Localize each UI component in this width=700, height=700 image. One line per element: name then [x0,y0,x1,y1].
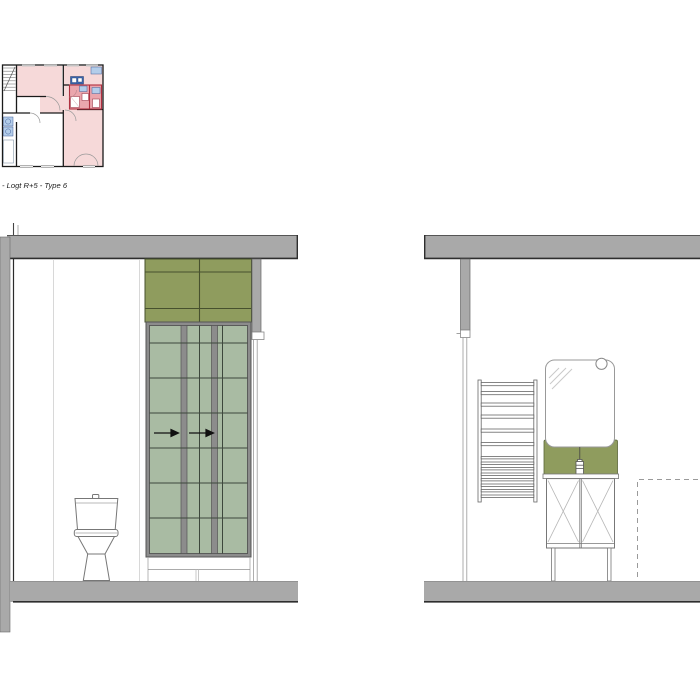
upper-cabinet-panel [145,259,252,322]
glazed-sliding-partition [146,322,251,557]
elevation-left [0,223,298,632]
partition-plinth [148,557,250,581]
mirror-light [596,358,607,369]
wall-post-right-elevation [457,259,471,581]
floor-slab-right [424,581,700,602]
toilet-flush-button [93,495,99,499]
vanity-cabinet [547,479,615,548]
toilet [74,495,118,581]
architectural-sheet: - Logt R+5 - Type 6 [0,0,700,700]
plan-staircase [3,67,15,91]
floor-plan-thumbnail: - Logt R+5 - Type 6 [2,64,103,190]
ceiling-slab-right [424,235,700,259]
elevation-right [424,235,700,602]
door-stile [212,326,218,554]
plan-room-fills [17,66,103,166]
ceiling-slab-left [7,223,298,259]
drawing-canvas: - Logt R+5 - Type 6 [0,0,700,700]
mirror [546,358,615,447]
vanity-countertop [543,474,619,479]
cabinet-legs [552,548,612,581]
plan-caption: - Logt R+5 - Type 6 [2,181,68,190]
floor-slab-left [10,581,298,602]
reservation-dashed-outline [638,480,700,578]
side-wall-left [0,237,10,632]
door-stile [181,326,187,554]
wall-post-left-elevation [252,259,264,581]
towel-radiator [478,380,537,502]
